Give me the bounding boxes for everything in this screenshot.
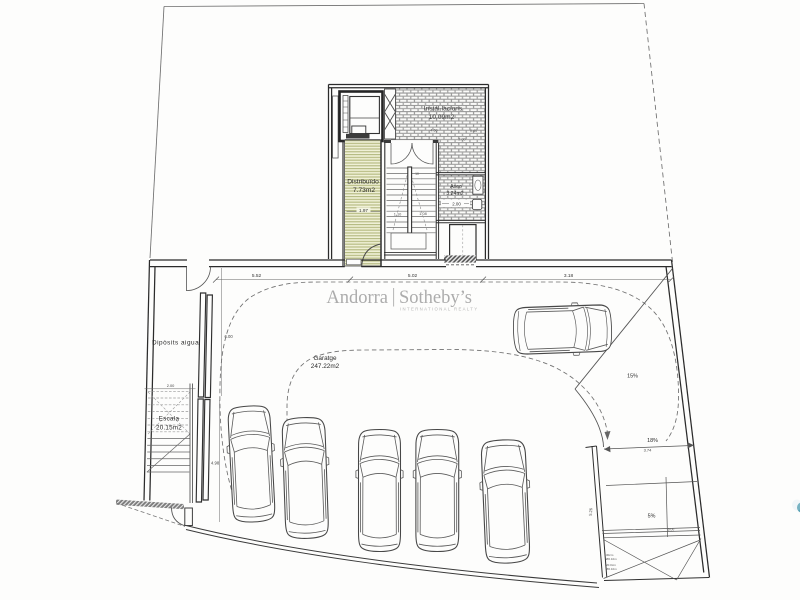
- svg-text:Escala: Escala: [159, 416, 180, 423]
- svg-text:15%: 15%: [627, 374, 638, 380]
- svg-text:18%: 18%: [647, 438, 658, 444]
- svg-text:4.98: 4.98: [211, 461, 220, 466]
- svg-text:Ø0.10m: Ø0.10m: [606, 557, 617, 561]
- svg-text:0.40: 0.40: [470, 129, 477, 133]
- svg-text:247.22m2: 247.22m2: [311, 363, 340, 370]
- svg-text:2.00: 2.00: [452, 201, 461, 206]
- svg-text:1.08: 1.08: [419, 211, 427, 216]
- svg-text:Distribuïdo: Distribuïdo: [347, 179, 379, 186]
- svg-text:Sotheby’s: Sotheby’s: [399, 288, 472, 308]
- svg-text:Ø0.10m: Ø0.10m: [606, 567, 617, 571]
- svg-text:Instal·lacions: Instal·lacions: [424, 106, 463, 113]
- svg-text:3.24m2: 3.24m2: [446, 191, 463, 197]
- svg-text:3.18: 3.18: [564, 273, 574, 279]
- svg-text:1.97: 1.97: [359, 208, 368, 213]
- svg-text:Dipòsits aigua: Dipòsits aigua: [152, 340, 199, 347]
- svg-text:10.09m2: 10.09m2: [429, 114, 455, 121]
- svg-text:20.15m2: 20.15m2: [156, 425, 182, 432]
- svg-text:4.60: 4.60: [430, 128, 437, 132]
- svg-text:3.74: 3.74: [644, 448, 653, 453]
- svg-text:7.73m2: 7.73m2: [353, 187, 375, 194]
- svg-text:10: 10: [415, 172, 419, 176]
- svg-text:1.10: 1.10: [394, 212, 402, 217]
- svg-text:5.02: 5.02: [408, 273, 418, 279]
- svg-text:Aseo: Aseo: [450, 184, 462, 190]
- svg-text:INTERNATIONAL REALTY: INTERNATIONAL REALTY: [400, 307, 479, 312]
- svg-text:5.26: 5.26: [588, 507, 594, 516]
- svg-text:6.00: 6.00: [668, 528, 675, 532]
- svg-text:2.00: 2.00: [167, 383, 175, 388]
- svg-text:5.52: 5.52: [252, 273, 262, 279]
- svg-text:Andorra: Andorra: [326, 288, 388, 308]
- svg-text:5%: 5%: [648, 514, 656, 520]
- svg-text:2.00: 2.00: [458, 138, 465, 142]
